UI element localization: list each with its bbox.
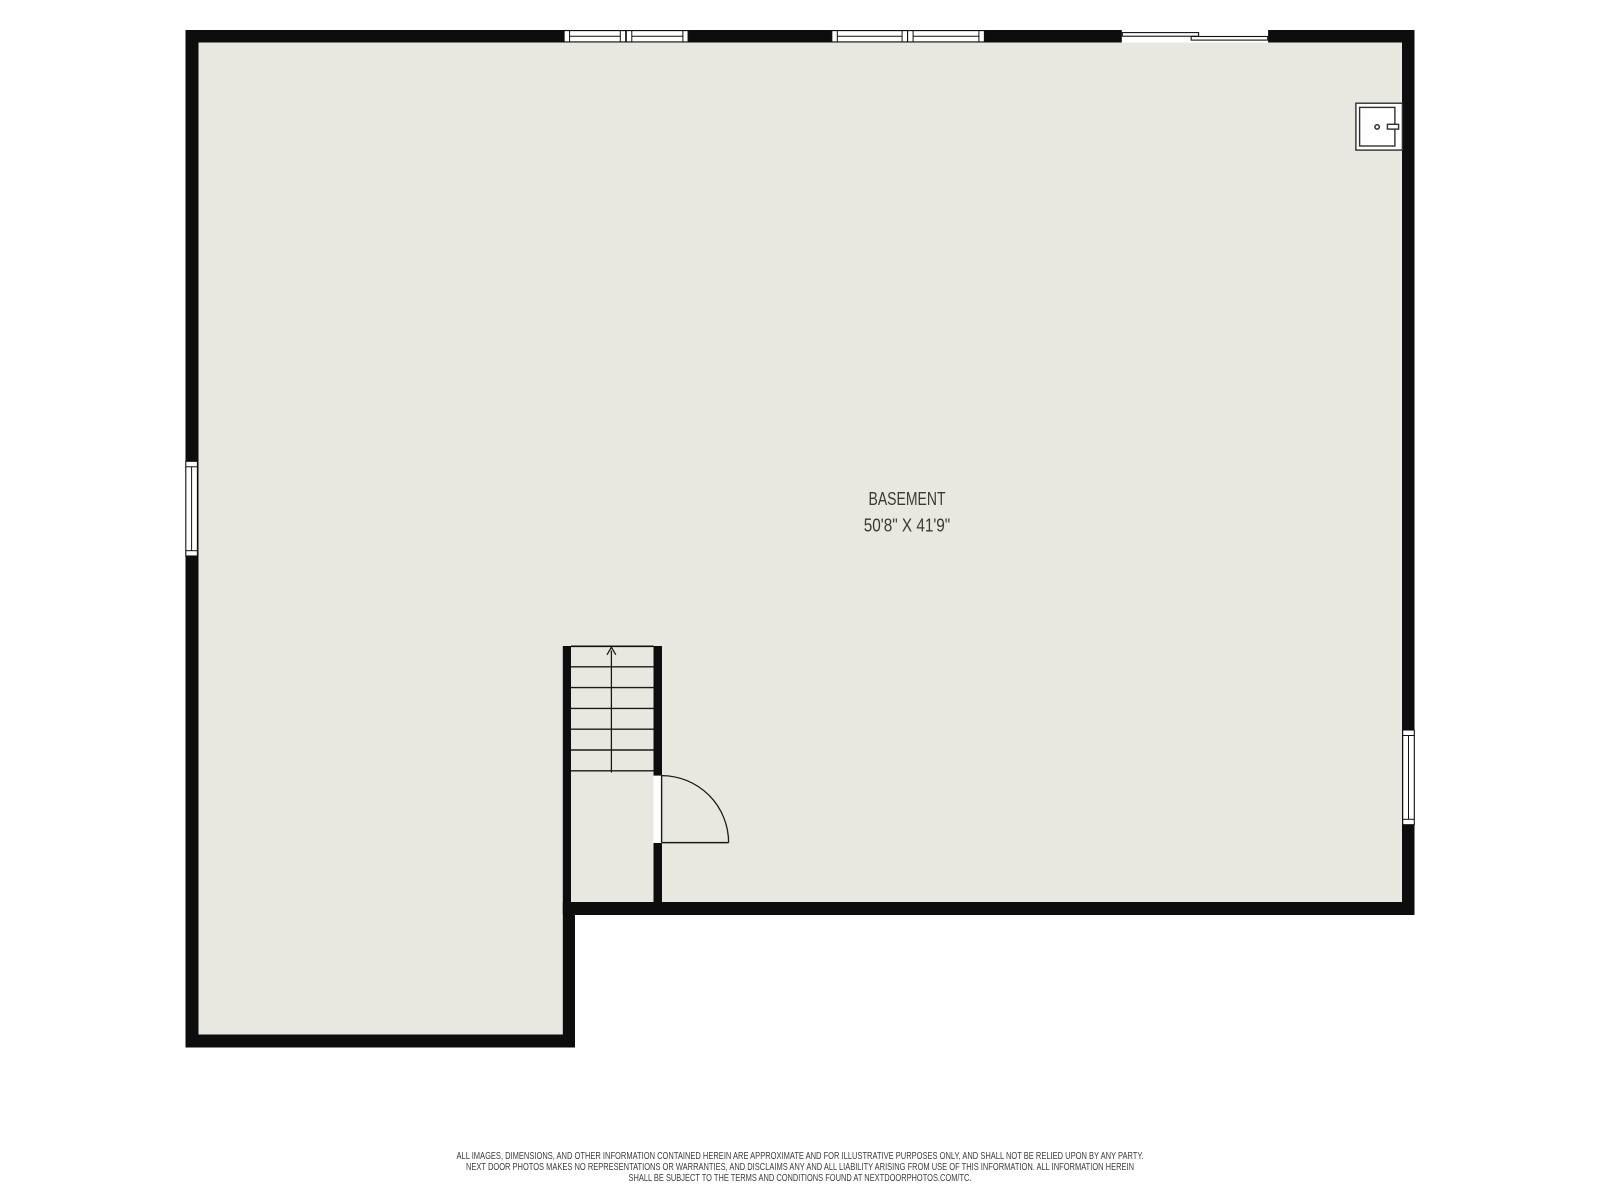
- svg-text:NEXT DOOR PHOTOS MAKES NO REPR: NEXT DOOR PHOTOS MAKES NO REPRESENTATION…: [466, 1162, 1134, 1173]
- svg-text:BASEMENT: BASEMENT: [869, 488, 946, 509]
- svg-text:SHALL BE SUBJECT TO THE TERMS: SHALL BE SUBJECT TO THE TERMS AND CONDIT…: [629, 1173, 972, 1184]
- svg-text:50'8" X 41'9": 50'8" X 41'9": [864, 515, 951, 535]
- svg-text:ALL IMAGES, DIMENSIONS, AND OT: ALL IMAGES, DIMENSIONS, AND OTHER INFORM…: [457, 1151, 1144, 1162]
